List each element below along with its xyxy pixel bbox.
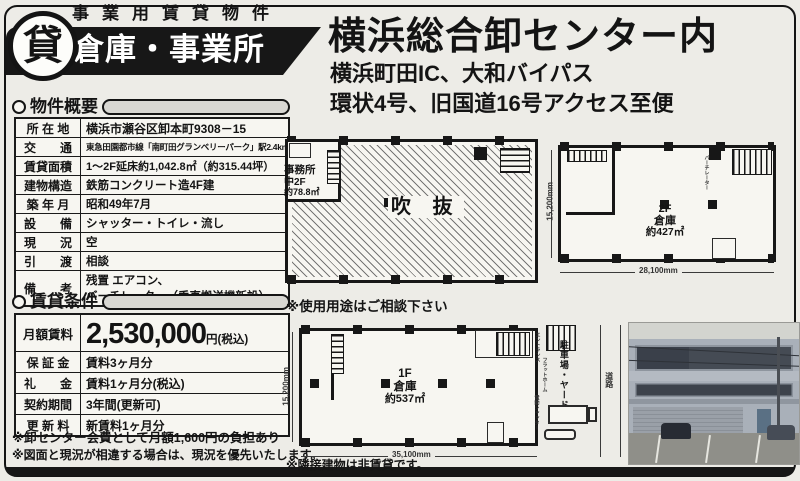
usage-note: ※使用用途はご相談下さい bbox=[286, 300, 448, 315]
interior-column bbox=[310, 379, 319, 388]
row-label: 交 通 bbox=[16, 138, 81, 156]
badge-band-label: 倉庫・事業所 bbox=[73, 33, 265, 67]
row-value: 東急田園都市線「南町田グランベリーパーク」駅2.4km bbox=[81, 138, 289, 156]
ventilator-label: バーチレーター bbox=[703, 155, 709, 190]
column-strip bbox=[560, 254, 774, 263]
table-row: 所 在 地 横浜市瀬谷区卸本町9308－15 bbox=[16, 119, 288, 137]
road-label: 道路 bbox=[604, 372, 613, 388]
void-label: 吹 抜 bbox=[388, 196, 464, 218]
floor1-dim-left: 15,200mm bbox=[283, 362, 292, 410]
terms-section-header: 賃貸条件 bbox=[12, 293, 290, 312]
section-bullet-icon bbox=[12, 100, 26, 114]
interior-column bbox=[708, 200, 717, 209]
stairs bbox=[500, 148, 530, 173]
row-label: 所 在 地 bbox=[16, 119, 81, 137]
table-row: 賃貸面積 1～2F延床約1,042.8㎡（約315.44坪） bbox=[16, 156, 288, 175]
car-icon bbox=[544, 429, 576, 440]
table-row: 引 渡 相談 bbox=[16, 251, 288, 270]
shaft bbox=[474, 147, 487, 160]
row-value: 3年間(更新可) bbox=[81, 394, 288, 414]
floor1-label: 1F 倉庫 約537㎡ bbox=[370, 368, 440, 405]
building-photo bbox=[628, 322, 800, 465]
row-value: 横浜市瀬谷区卸本町9308－15 bbox=[81, 119, 288, 137]
entrance-label: エントランス bbox=[534, 332, 540, 362]
platform-label: フラットホーム bbox=[541, 357, 547, 392]
row-label: 築 年 月 bbox=[16, 195, 81, 213]
badge-top-label: 事業用賃貸物件 bbox=[72, 5, 282, 24]
row-value: 空 bbox=[81, 233, 288, 251]
column-strip bbox=[287, 275, 537, 284]
row-value: 賃料1ヶ月分(税込) bbox=[81, 373, 288, 393]
truck-icon bbox=[548, 405, 588, 424]
photo-car bbox=[661, 423, 691, 439]
truck-cab-icon bbox=[588, 407, 597, 422]
shaft bbox=[709, 148, 721, 160]
row-label: 礼 金 bbox=[16, 373, 81, 393]
row-label: 現 況 bbox=[16, 233, 81, 251]
floor2-dim-bottom: 28,100mm bbox=[635, 267, 682, 276]
remark-line-1: 残置 エアコン、 bbox=[86, 272, 169, 288]
wc-room bbox=[289, 143, 311, 158]
note-membership-fee: ※卸センター会費として月額1,600円の負担あり bbox=[12, 432, 280, 446]
row-label: 建物構造 bbox=[16, 176, 81, 194]
stairs bbox=[331, 334, 344, 374]
rent-amount: 2,530,000 bbox=[86, 319, 206, 351]
photo-spandrel bbox=[629, 371, 799, 381]
row-label: 契約期間 bbox=[16, 394, 81, 414]
table-row: 礼 金 賃料1ヶ月分(税込) bbox=[16, 372, 288, 393]
photo-car bbox=[767, 425, 795, 440]
row-label: 賃貸面積 bbox=[16, 157, 81, 175]
table-row: 築 年 月 昭和49年7月 bbox=[16, 194, 288, 213]
terms-section-label: 賃貸条件 bbox=[30, 293, 98, 312]
row-value: 1～2F延床約1,042.8㎡（約315.44坪） bbox=[81, 157, 288, 175]
row-value: 鉄筋コンクリート造4F建 bbox=[81, 176, 288, 194]
table-row: 建物構造 鉄筋コンクリート造4F建 bbox=[16, 175, 288, 194]
photo-canopy bbox=[629, 399, 799, 404]
interior-column bbox=[486, 379, 495, 388]
overview-table: 所 在 地 横浜市瀬谷区卸本町9308－15 交 通 東急田園都市線「南町田グラ… bbox=[14, 117, 290, 307]
office-label: 事務所 中2F 約78.8㎡ bbox=[284, 165, 336, 197]
photo-sky bbox=[629, 323, 799, 339]
interior-wall bbox=[566, 212, 615, 215]
row-value: 昭和49年7月 bbox=[81, 195, 288, 213]
shutter-label: 電動シャッター bbox=[533, 395, 539, 430]
floor2-dim-left: 15,200mm bbox=[547, 177, 556, 225]
table-row: 設 備 シャッター・トイレ・流し bbox=[16, 213, 288, 232]
page-title: 横浜総合卸センター内 bbox=[328, 17, 718, 59]
rent-kanji: 貸 bbox=[23, 24, 63, 68]
rent-row: 月額賃料 2,530,000 円(税込) bbox=[16, 315, 288, 351]
table-row: 交 通 東急田園都市線「南町田グランベリーパーク」駅2.4km bbox=[16, 137, 288, 156]
property-flyer: 管理番号 42230001 事業用賃貸物件 倉庫・事業所 貸 横浜総合卸センター… bbox=[0, 0, 800, 481]
parking-yard-label: 駐車場・ヤード bbox=[558, 340, 568, 410]
road-line bbox=[620, 325, 621, 457]
page-subtitle-2: 環状4号、旧国道16号アクセス至便 bbox=[330, 92, 674, 116]
row-label: 保 証 金 bbox=[16, 352, 81, 372]
section-capsule bbox=[102, 294, 290, 310]
row-value: 賃料3ヶ月分 bbox=[81, 352, 288, 372]
terms-table: 月額賃料 2,530,000 円(税込) 保 証 金 賃料3ヶ月分 礼 金 賃料… bbox=[14, 313, 290, 437]
table-row: 保 証 金 賃料3ヶ月分 bbox=[16, 351, 288, 372]
adjacent-note: ※隣接建物は非賃貸です。 bbox=[286, 459, 428, 472]
interior-wall bbox=[612, 148, 615, 214]
section-capsule bbox=[102, 99, 290, 115]
page-subtitle-1: 横浜町田IC、大和バイパス bbox=[330, 62, 594, 86]
stairs bbox=[496, 332, 530, 356]
interior-wall bbox=[331, 374, 334, 400]
table-row: 契約期間 3年間(更新可) bbox=[16, 393, 288, 414]
row-value: シャッター・トイレ・流し bbox=[81, 214, 288, 232]
stairs bbox=[732, 149, 772, 175]
road-line bbox=[600, 325, 601, 457]
row-value: 相談 bbox=[81, 252, 288, 270]
rent-circle-badge: 貸 bbox=[8, 11, 78, 81]
overview-section-label: 物件概要 bbox=[30, 98, 98, 117]
wc-room bbox=[487, 422, 504, 443]
table-row: 現 況 空 bbox=[16, 232, 288, 251]
row-label: 設 備 bbox=[16, 214, 81, 232]
stairs bbox=[567, 150, 607, 162]
rent-label: 月額賃料 bbox=[16, 315, 81, 351]
overview-section-header: 物件概要 bbox=[12, 98, 290, 117]
photo-pole bbox=[777, 337, 780, 433]
floor2-label: 2F 倉庫 約427㎡ bbox=[630, 203, 700, 239]
utility-room bbox=[712, 238, 736, 259]
photo-window-band-lower bbox=[635, 383, 793, 397]
rent-suffix: 円(税込) bbox=[206, 334, 248, 347]
row-label: 引 渡 bbox=[16, 252, 81, 270]
note-discrepancy: ※図面と現況が相違する場合は、現況を優先いたします。 bbox=[12, 449, 322, 462]
dimension-line bbox=[292, 332, 293, 442]
section-bullet-icon bbox=[12, 295, 26, 309]
